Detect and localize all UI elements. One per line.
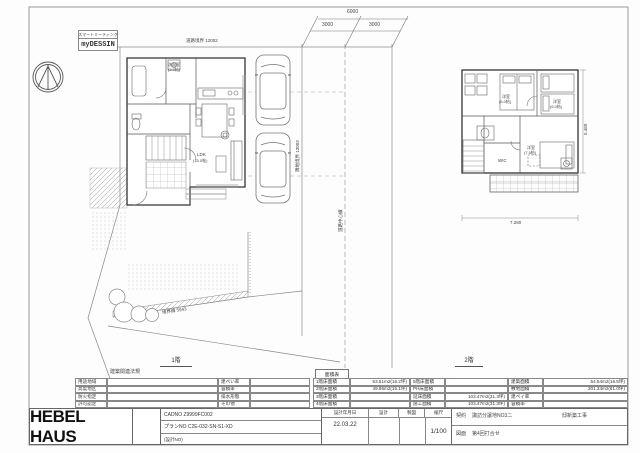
area-value: 54.54m2(16.5坪) bbox=[543, 378, 628, 386]
project-info-cell: 契約 諏訪分譲地NO3二 邸新築工事 図面 第4回打合せ bbox=[451, 408, 628, 445]
title-block-blank-cell bbox=[132, 408, 161, 445]
car-icon bbox=[255, 133, 291, 203]
dim-6000: 6000 bbox=[347, 10, 358, 16]
area-value bbox=[350, 401, 410, 409]
top-dimension-lines bbox=[302, 16, 408, 47]
area-label: 4階床面積 bbox=[313, 401, 350, 409]
dim-3000-right: 3000 bbox=[369, 23, 380, 29]
reg-value bbox=[107, 386, 218, 394]
car-icon bbox=[255, 55, 291, 125]
room-label-bed2-size: (6.0帖) bbox=[550, 105, 562, 109]
house-1f bbox=[127, 58, 245, 205]
room-label-ldk-size: (15.0帖) bbox=[193, 159, 207, 163]
reg-label: 容積率 bbox=[218, 386, 250, 394]
cad-info-cell: CADNO Z9999FC002 プランNO C2E-032-SN-S1-XD … bbox=[160, 408, 322, 445]
cad-drawing-sheet: { "stamps": { "smart_meeting": "スマートミーティ… bbox=[0, 0, 640, 453]
boundary-top-dimension: 道路境界 12002 bbox=[186, 39, 218, 44]
house-2f bbox=[462, 70, 586, 221]
drawing-value: 第4回打合せ bbox=[472, 432, 500, 438]
area-value bbox=[350, 393, 410, 401]
area-value: 103.47m2(31.3坪) bbox=[445, 393, 508, 401]
area-table: 1階床面積 53.51m2(16.2坪) 5階床面積 建築面積 54.54m2(… bbox=[313, 378, 628, 408]
reg-value bbox=[250, 378, 310, 386]
north-arrow-icon bbox=[33, 62, 63, 92]
area-label: 施工面積 bbox=[410, 401, 445, 409]
reg-value bbox=[250, 386, 310, 394]
area-value: 201.34m2(61.0坪) bbox=[543, 386, 628, 394]
boundary-east-dimension: 隣地境界 13003 bbox=[296, 140, 301, 172]
reg-label: 高度地区 bbox=[75, 386, 107, 394]
area-label: 1階床面積 bbox=[313, 378, 350, 386]
drawing-label: 図面 bbox=[456, 432, 466, 438]
reg-label: 用途地域 bbox=[75, 378, 107, 386]
draft-label: 製図 bbox=[399, 409, 425, 418]
hebel-haus-logo: HEBEL HAUS bbox=[29, 408, 133, 445]
dim-3000-left: 3000 bbox=[322, 23, 333, 29]
area-label: 建築面積 bbox=[508, 378, 543, 386]
regulations-title: 建築関連法規 bbox=[110, 370, 140, 376]
draft-value bbox=[399, 418, 426, 445]
regulations-table: 用途地域 建ぺい率 高度地区 容積率 防火指定 排水形態 許可認定 その他 bbox=[75, 378, 310, 408]
date-value: 22.03.22 bbox=[322, 418, 369, 445]
area-label: 容積率 bbox=[508, 401, 543, 409]
area-label: 建ペイ率 bbox=[508, 393, 543, 401]
room-label-wic: WIC bbox=[498, 159, 507, 164]
area-value bbox=[543, 393, 628, 401]
plan-number: プランNO C2E-032-SN-S1-XD bbox=[161, 421, 321, 433]
area-value: 53.51m2(16.2坪) bbox=[350, 378, 410, 386]
reg-label: 建ぺい率 bbox=[218, 378, 250, 386]
area-label: PH床面積 bbox=[410, 386, 445, 394]
cad-number: CADNO Z9999FC002 bbox=[161, 409, 321, 421]
reg-value bbox=[250, 401, 310, 409]
date-label: 設計年月日 bbox=[322, 409, 369, 418]
project-suffix: 邸新築工事 bbox=[562, 414, 587, 420]
project-value: 諏訪分譲地NO3二 bbox=[472, 414, 512, 420]
project-label: 契約 bbox=[456, 414, 466, 420]
design-label: 設計 bbox=[369, 409, 399, 418]
area-label: 5階床面積 bbox=[410, 378, 445, 386]
area-label: 3階床面積 bbox=[313, 393, 350, 401]
design-info-cell: 設計年月日 設計 製図 縮尺 22.03.22 1/100 bbox=[321, 408, 452, 445]
floor2-caption: 2階 bbox=[455, 358, 483, 367]
road-center-label: 道路中心線 bbox=[339, 210, 344, 233]
area-value bbox=[445, 386, 508, 394]
area-label: 敷地面積 bbox=[508, 386, 543, 394]
dim-2f-width: 7.280 bbox=[510, 221, 521, 226]
reg-label: 防火指定 bbox=[75, 393, 107, 401]
area-label: 2階床面積 bbox=[313, 386, 350, 394]
area-label: 延床面積 bbox=[410, 393, 445, 401]
reg-value bbox=[107, 378, 218, 386]
reg-label: その他 bbox=[218, 401, 250, 409]
stamp-mydessin: myDESSIN bbox=[78, 38, 118, 51]
room-label-bed3-size: (7.5帖) bbox=[524, 151, 536, 155]
dim-2f-height: 5.460 bbox=[584, 124, 589, 135]
design-value bbox=[369, 418, 400, 445]
design-number: (設計NO) bbox=[161, 434, 321, 446]
scale-value: 1/100 bbox=[425, 418, 452, 445]
floor1-caption: 1階 bbox=[160, 358, 192, 367]
reg-value bbox=[250, 393, 310, 401]
project-row: 契約 諏訪分譲地NO3二 邸新築工事 bbox=[452, 409, 627, 426]
area-value bbox=[543, 401, 628, 409]
area-value: 103.47m2(31.3坪) bbox=[445, 401, 508, 409]
room-label-bed1-size: (6.0帖) bbox=[499, 100, 511, 104]
reg-value bbox=[107, 393, 218, 401]
scale-label: 縮尺 bbox=[425, 409, 452, 418]
area-value bbox=[445, 378, 508, 386]
room-label-wash-size: (3.0帖) bbox=[168, 68, 180, 72]
area-value: 49.96m2(15.1坪) bbox=[350, 386, 410, 394]
drawing-row: 図面 第4回打合せ bbox=[452, 426, 627, 446]
reg-label: 排水形態 bbox=[218, 393, 250, 401]
